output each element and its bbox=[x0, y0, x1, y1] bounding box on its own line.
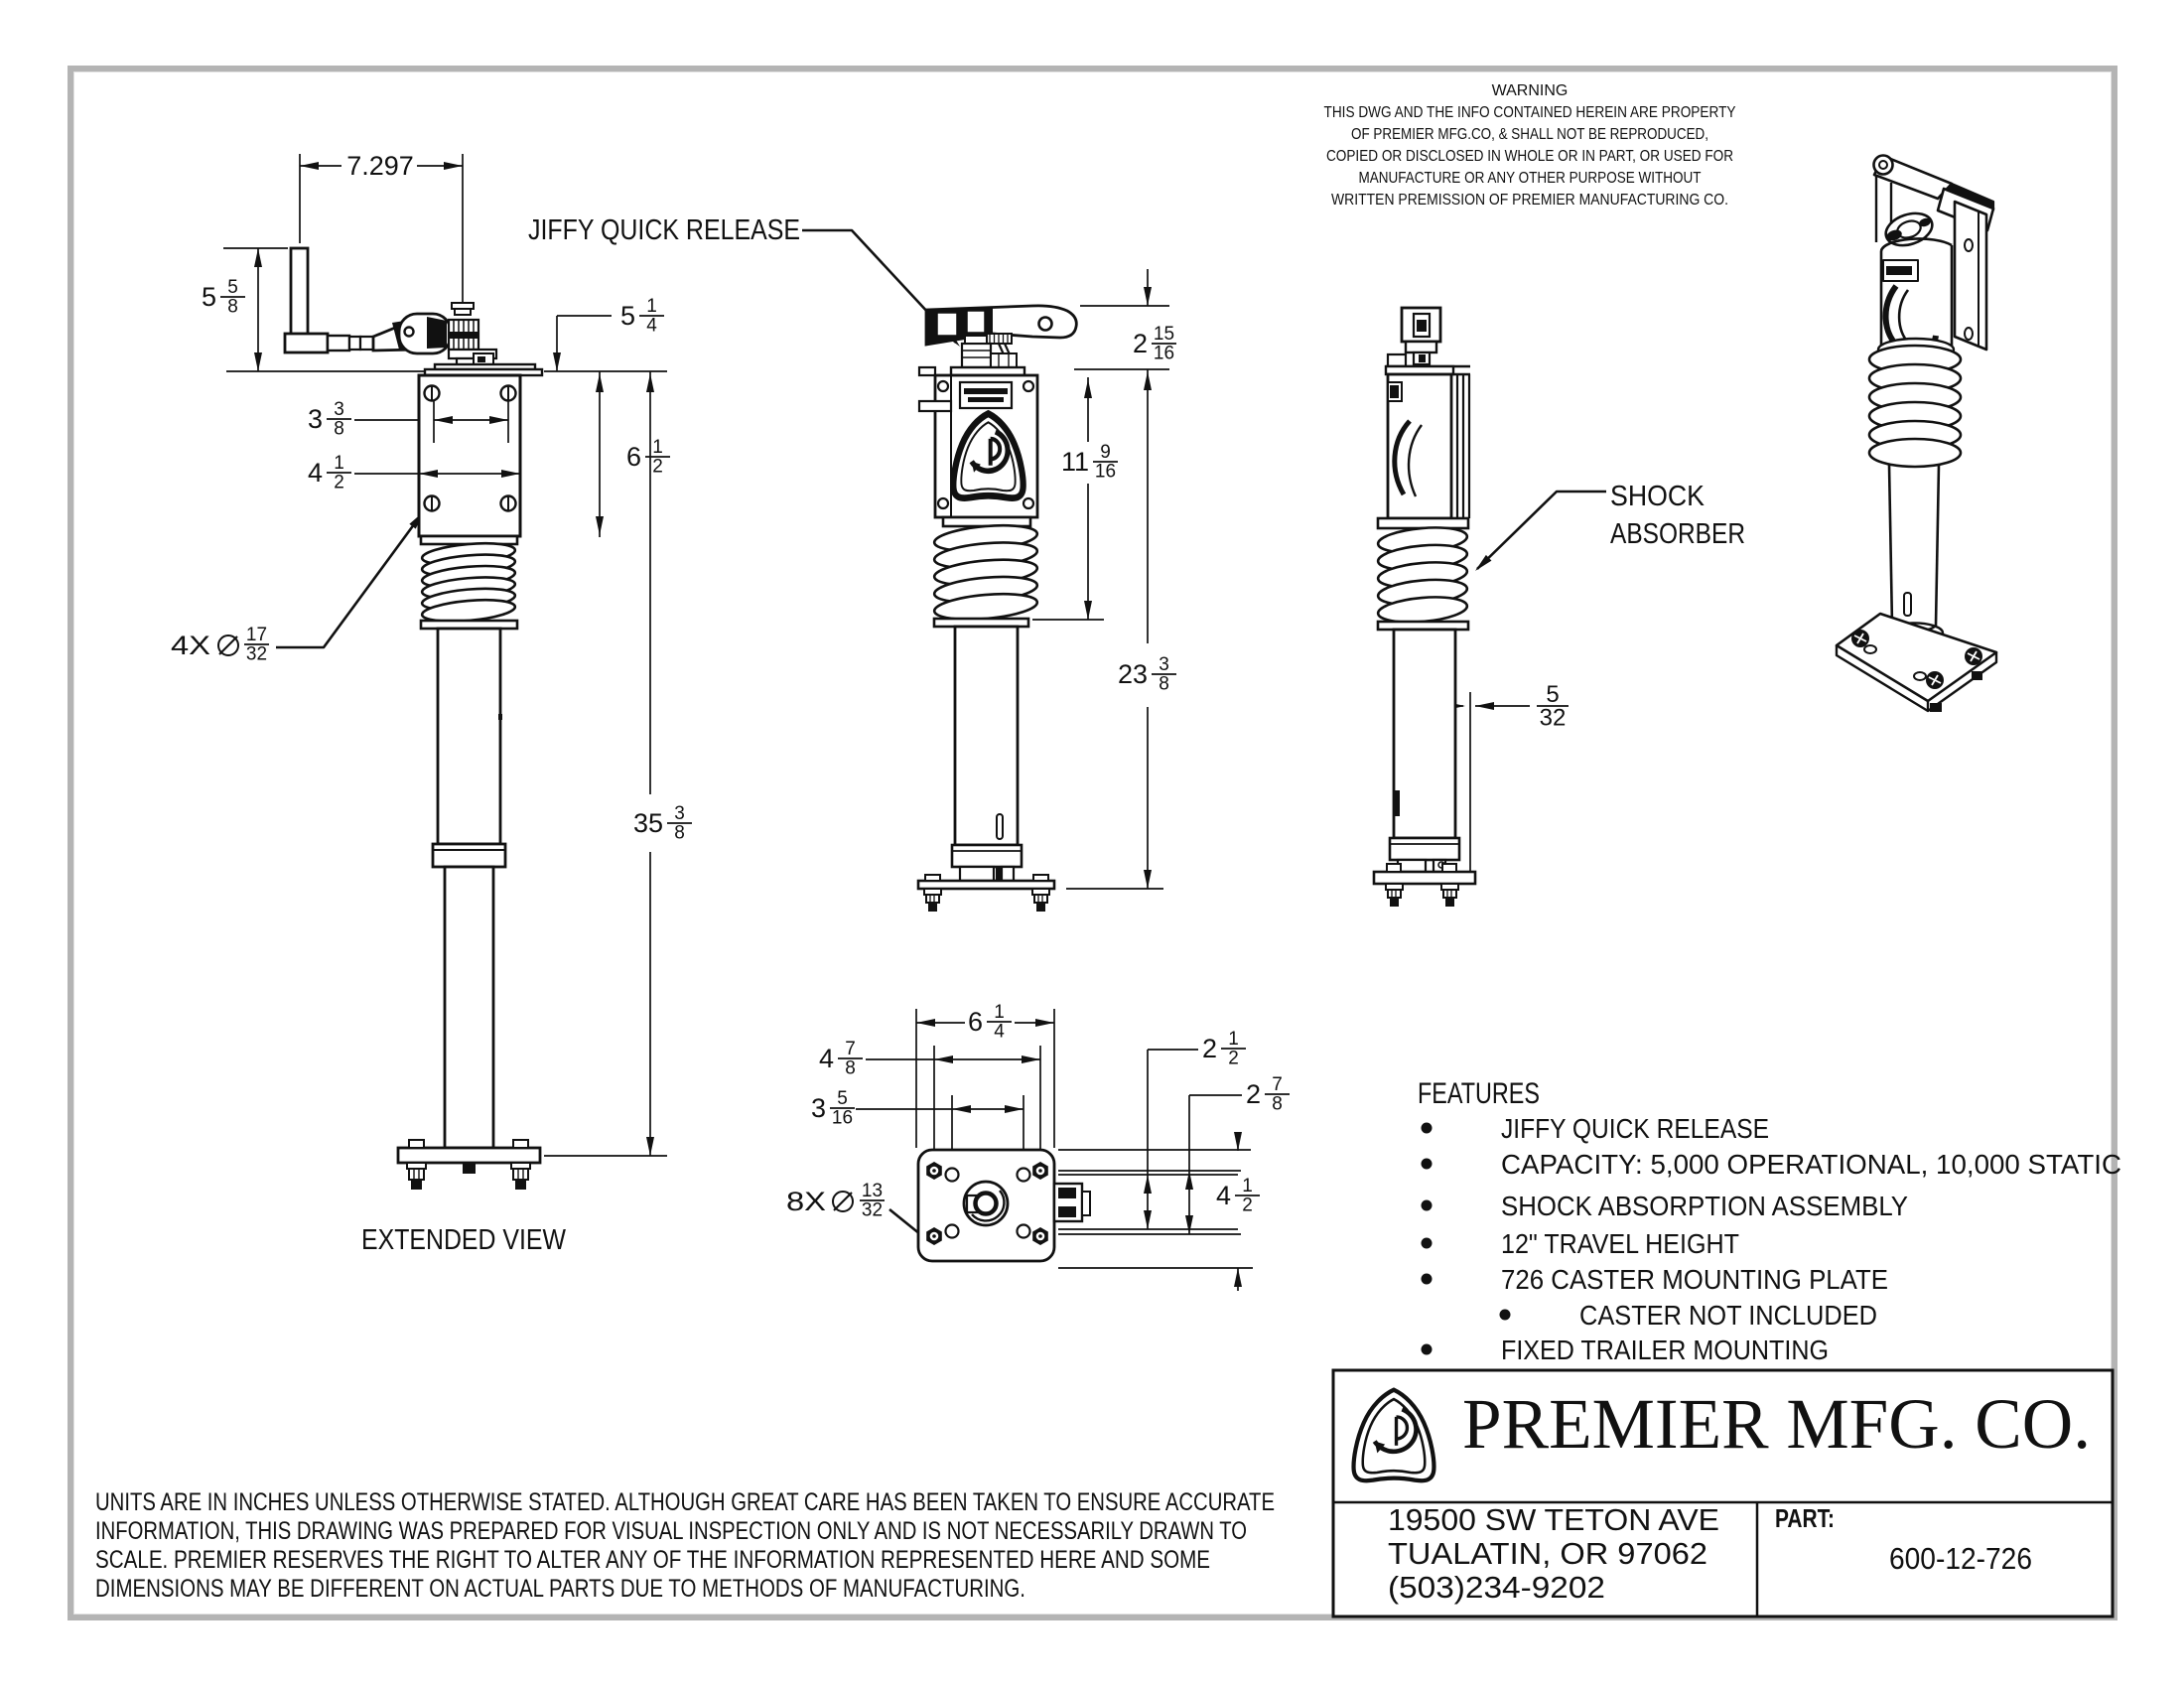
svg-text:17: 17 bbox=[246, 625, 267, 645]
svg-text:WRITTEN PREMISSION OF PREMIER: WRITTEN PREMISSION OF PREMIER MANUFACTUR… bbox=[1331, 192, 1728, 209]
svg-text:1: 1 bbox=[1242, 1176, 1253, 1196]
svg-text:3: 3 bbox=[1159, 654, 1169, 675]
svg-text:7: 7 bbox=[845, 1039, 856, 1059]
svg-text:(503)234-9202: (503)234-9202 bbox=[1388, 1570, 1605, 1605]
svg-text:4X: 4X bbox=[171, 631, 210, 660]
svg-text:16: 16 bbox=[1154, 344, 1174, 364]
svg-text:SCALE. PREMIER RESERVES THE R: SCALE. PREMIER RESERVES THE RIGHT TO ALT… bbox=[95, 1546, 1210, 1574]
svg-text:8: 8 bbox=[845, 1058, 856, 1079]
svg-text:UNITS ARE IN INCHES UNLESS OTH: UNITS ARE IN INCHES UNLESS OTHERWISE STA… bbox=[95, 1488, 1275, 1516]
svg-text:2: 2 bbox=[1202, 1034, 1217, 1063]
svg-text:PREMIER MFG. CO.: PREMIER MFG. CO. bbox=[1462, 1384, 2091, 1464]
svg-text:2: 2 bbox=[1242, 1196, 1253, 1216]
svg-text:ABSORBER: ABSORBER bbox=[1610, 518, 1745, 550]
svg-text:8: 8 bbox=[1272, 1094, 1283, 1115]
svg-text:MANUFACTURE OR ANY OTHER PURPO: MANUFACTURE OR ANY OTHER PURPOSE WITHOUT bbox=[1359, 170, 1702, 187]
svg-text:3: 3 bbox=[811, 1093, 826, 1123]
svg-text:2: 2 bbox=[1246, 1079, 1261, 1109]
svg-text:1: 1 bbox=[1228, 1029, 1239, 1050]
svg-text:THIS DWG AND THE INFO CONTAINE: THIS DWG AND THE INFO CONTAINED HEREIN A… bbox=[1324, 104, 1736, 121]
svg-text:2: 2 bbox=[652, 457, 663, 478]
svg-text:INFORMATION, THIS DRAWING WAS: INFORMATION, THIS DRAWING WAS PREPARED F… bbox=[95, 1517, 1247, 1545]
svg-text:23: 23 bbox=[1118, 659, 1148, 689]
svg-text:32: 32 bbox=[246, 644, 267, 665]
svg-text:SHOCK ABSORPTION ASSEMBLY: SHOCK ABSORPTION ASSEMBLY bbox=[1501, 1191, 1908, 1221]
svg-text:726 CASTER MOUNTING PLATE: 726 CASTER MOUNTING PLATE bbox=[1501, 1264, 1888, 1295]
svg-text:TUALATIN, OR 97062: TUALATIN, OR 97062 bbox=[1388, 1536, 1707, 1571]
svg-text:19500 SW TETON AVE: 19500 SW TETON AVE bbox=[1388, 1502, 1719, 1537]
svg-text:JIFFY QUICK RELEASE: JIFFY QUICK RELEASE bbox=[528, 214, 800, 246]
svg-text:5: 5 bbox=[227, 277, 238, 298]
svg-text:16: 16 bbox=[832, 1108, 853, 1129]
svg-text:2: 2 bbox=[1133, 329, 1148, 358]
svg-text:7.297: 7.297 bbox=[346, 151, 414, 181]
svg-text:600-12-726: 600-12-726 bbox=[1889, 1541, 2032, 1576]
svg-text:15: 15 bbox=[1154, 324, 1174, 345]
svg-text:WARNING: WARNING bbox=[1492, 82, 1569, 99]
svg-text:6: 6 bbox=[626, 442, 641, 472]
svg-text:CAPACITY: 5,000 OPERATIONAL, 1: CAPACITY: 5,000 OPERATIONAL, 10,000 STAT… bbox=[1501, 1149, 2121, 1180]
svg-text:5: 5 bbox=[620, 301, 635, 331]
svg-text:8: 8 bbox=[334, 419, 344, 440]
svg-text:OF PREMIER MFG.CO, & SHALL NOT: OF PREMIER MFG.CO, & SHALL NOT BE REPROD… bbox=[1351, 126, 1708, 143]
svg-text:32: 32 bbox=[1540, 705, 1567, 732]
svg-text:3: 3 bbox=[308, 404, 323, 434]
svg-text:8: 8 bbox=[1159, 674, 1169, 695]
svg-text:35: 35 bbox=[633, 808, 663, 838]
svg-text:4: 4 bbox=[994, 1022, 1005, 1043]
svg-text:JIFFY QUICK RELEASE: JIFFY QUICK RELEASE bbox=[1501, 1113, 1769, 1144]
svg-text:6: 6 bbox=[968, 1007, 983, 1037]
svg-text:12" TRAVEL HEIGHT: 12" TRAVEL HEIGHT bbox=[1501, 1228, 1739, 1259]
svg-text:1: 1 bbox=[652, 437, 663, 458]
svg-text:13: 13 bbox=[862, 1181, 883, 1201]
svg-text:1: 1 bbox=[646, 296, 657, 317]
svg-text:9: 9 bbox=[1100, 442, 1111, 463]
svg-text:32: 32 bbox=[862, 1200, 883, 1221]
svg-text:4: 4 bbox=[1216, 1181, 1231, 1210]
svg-text:1: 1 bbox=[334, 453, 344, 474]
svg-text:11: 11 bbox=[1061, 447, 1089, 477]
svg-text:CASTER NOT INCLUDED: CASTER NOT INCLUDED bbox=[1579, 1300, 1877, 1331]
svg-text:8: 8 bbox=[674, 823, 685, 844]
svg-text:2: 2 bbox=[1228, 1049, 1239, 1069]
svg-text:EXTENDED VIEW: EXTENDED VIEW bbox=[361, 1224, 567, 1256]
svg-text:8X: 8X bbox=[786, 1187, 826, 1216]
svg-text:5: 5 bbox=[202, 282, 216, 312]
svg-text:FIXED TRAILER MOUNTING: FIXED TRAILER MOUNTING bbox=[1501, 1335, 1829, 1365]
svg-text:4: 4 bbox=[819, 1044, 834, 1073]
svg-text:4: 4 bbox=[308, 458, 323, 488]
svg-text:5: 5 bbox=[837, 1088, 848, 1109]
svg-text:COPIED OR DISCLOSED IN WHOLE O: COPIED OR DISCLOSED IN WHOLE OR IN PART,… bbox=[1326, 148, 1733, 165]
svg-text:FEATURES: FEATURES bbox=[1418, 1077, 1540, 1110]
svg-text:16: 16 bbox=[1095, 462, 1116, 483]
svg-text:3: 3 bbox=[674, 803, 685, 824]
svg-text:1: 1 bbox=[994, 1002, 1005, 1023]
svg-text:DIMENSIONS MAY BE DIFFERENT ON: DIMENSIONS MAY BE DIFFERENT ON ACTUAL PA… bbox=[95, 1575, 1025, 1603]
svg-text:PART:: PART: bbox=[1775, 1503, 1835, 1533]
svg-text:4: 4 bbox=[646, 316, 657, 337]
svg-text:2: 2 bbox=[334, 473, 344, 493]
svg-text:7: 7 bbox=[1272, 1074, 1283, 1095]
svg-text:SHOCK: SHOCK bbox=[1610, 481, 1706, 512]
svg-text:8: 8 bbox=[227, 297, 238, 318]
svg-text:3: 3 bbox=[334, 399, 344, 420]
